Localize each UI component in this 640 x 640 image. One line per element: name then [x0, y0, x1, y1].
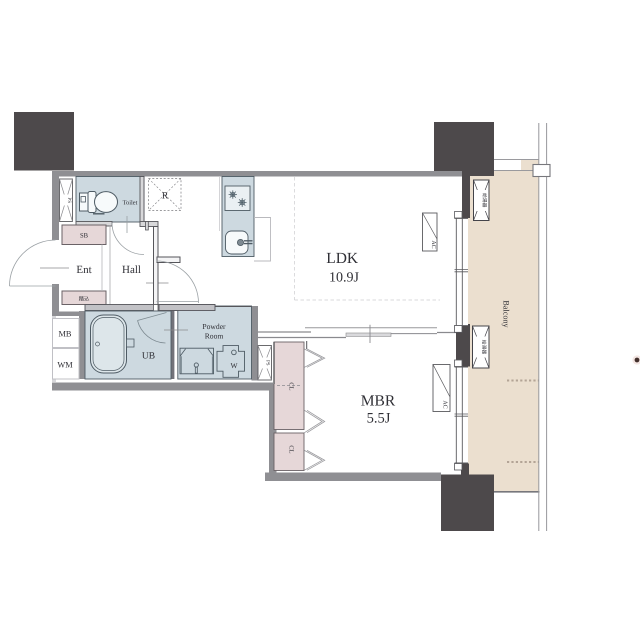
svg-text:Room: Room [205, 332, 224, 341]
svg-text:MB: MB [58, 330, 71, 339]
svg-text:Powder: Powder [202, 322, 226, 331]
svg-text:踏込: 踏込 [79, 296, 90, 303]
svg-text:10.9J: 10.9J [329, 271, 360, 286]
svg-text:CL: CL [288, 382, 295, 390]
svg-text:CL: CL [288, 445, 295, 453]
svg-text:AC: AC [430, 240, 436, 248]
svg-text:MBR: MBR [361, 393, 396, 410]
svg-text:SB: SB [80, 233, 89, 240]
svg-text:Ent: Ent [76, 264, 91, 276]
svg-text:UB: UB [142, 352, 155, 362]
svg-text:給湯器: 給湯器 [481, 340, 488, 355]
svg-text:W: W [230, 361, 238, 370]
svg-text:給湯器: 給湯器 [481, 193, 488, 208]
svg-text:LDK: LDK [326, 250, 359, 267]
svg-text:5.5J: 5.5J [367, 411, 391, 427]
svg-text:Toilet: Toilet [123, 200, 138, 207]
svg-text:PS: PS [265, 360, 271, 366]
svg-text:Hall: Hall [122, 264, 141, 276]
svg-text:PS: PS [66, 197, 72, 203]
svg-text:Balcony: Balcony [501, 300, 510, 328]
svg-text:AC: AC [442, 400, 448, 408]
svg-text:R: R [162, 192, 169, 202]
svg-text:WM: WM [57, 361, 73, 370]
